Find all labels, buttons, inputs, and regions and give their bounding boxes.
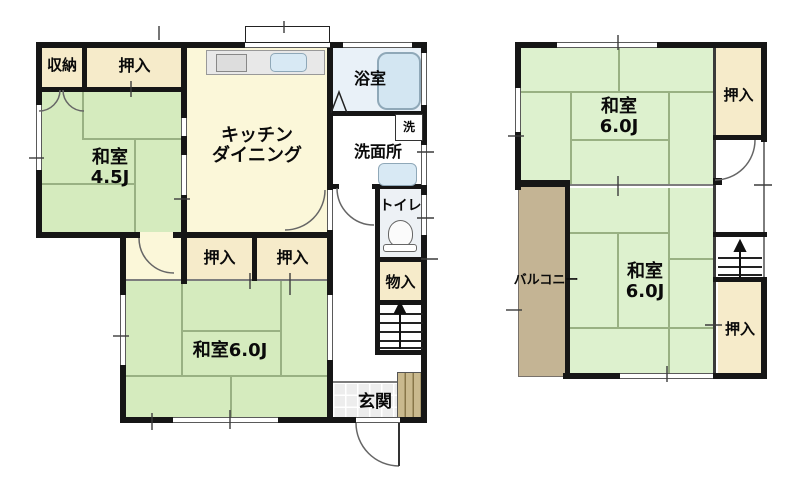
window bbox=[36, 105, 42, 170]
label-closet-top: 押入 bbox=[85, 57, 184, 75]
toilet-icon bbox=[388, 220, 413, 247]
tatami-line bbox=[570, 139, 668, 141]
bay-window-icon bbox=[245, 26, 330, 43]
stove-icon bbox=[216, 54, 247, 72]
room-name: 和室 bbox=[595, 262, 695, 282]
wall-2f-right-thin bbox=[763, 142, 765, 283]
fusuma-line bbox=[124, 279, 330, 281]
entrance-door-opening bbox=[356, 417, 400, 423]
wall bbox=[713, 373, 767, 379]
room-name: 和室 bbox=[569, 97, 669, 117]
wall bbox=[713, 178, 722, 185]
label-bathroom: 浴室 bbox=[333, 70, 407, 88]
label-laundry: 洗 bbox=[395, 121, 423, 134]
label-kitchen: キッチン ダイニング bbox=[186, 126, 328, 166]
label-storage: 収納 bbox=[39, 57, 85, 74]
wall bbox=[713, 277, 767, 282]
room-size: 4.5J bbox=[60, 168, 160, 188]
wall bbox=[375, 350, 427, 355]
stairs-1f bbox=[380, 331, 423, 333]
tatami-line bbox=[230, 375, 232, 420]
tatami-line bbox=[668, 258, 713, 260]
label-closet-2f-bottom: 押入 bbox=[718, 321, 762, 338]
window bbox=[343, 42, 412, 48]
label-washitsu-2f-top: 和室 6.0J bbox=[569, 97, 669, 137]
door-opening bbox=[327, 190, 333, 230]
toilet-base-icon bbox=[383, 244, 417, 252]
label-closet-mid-left: 押入 bbox=[184, 249, 255, 267]
window bbox=[620, 373, 713, 379]
label-closet-2f-top: 押入 bbox=[715, 87, 762, 104]
room-size: 6.0J bbox=[595, 282, 695, 302]
window bbox=[557, 42, 657, 48]
door-arc-icon-2f bbox=[715, 140, 755, 180]
label-storage-small: 物入 bbox=[378, 274, 423, 291]
wall bbox=[333, 184, 339, 189]
stairs-1f bbox=[380, 347, 423, 349]
washroom-door-arc-icon bbox=[337, 188, 374, 225]
wall bbox=[518, 180, 570, 187]
stairs-2f bbox=[718, 257, 762, 259]
label-washitsu-6-1f: 和室6.0J bbox=[130, 341, 330, 361]
stairs-2f bbox=[718, 266, 762, 268]
label-washitsu-2f-bottom: 和室 6.0J bbox=[595, 262, 695, 302]
label-balcony: バルコニー bbox=[496, 274, 596, 289]
room-name: キッチン bbox=[186, 126, 328, 146]
label-washitsu-4-5: 和室 4.5J bbox=[60, 148, 160, 188]
wall bbox=[563, 373, 620, 379]
kitchen-sink-icon bbox=[270, 53, 307, 72]
wall bbox=[375, 257, 423, 262]
tatami-line bbox=[82, 138, 184, 140]
tatami-line bbox=[82, 90, 84, 138]
washbasin-icon bbox=[378, 163, 417, 186]
stairs-up-arrowhead-icon bbox=[735, 241, 745, 251]
stairs-2f bbox=[718, 274, 762, 276]
stairs-1f bbox=[380, 340, 423, 342]
wall bbox=[375, 300, 423, 305]
window bbox=[421, 53, 427, 105]
window bbox=[173, 417, 278, 423]
tatami-line bbox=[618, 45, 620, 91]
stairs-1f bbox=[380, 313, 423, 315]
entrance-edge bbox=[333, 381, 397, 383]
tatami-line bbox=[570, 232, 668, 234]
wall bbox=[36, 87, 184, 92]
label-entrance: 玄関 bbox=[343, 393, 407, 412]
wall bbox=[713, 135, 767, 140]
room-name: ダイニング bbox=[186, 146, 328, 166]
stairs-1f bbox=[380, 322, 423, 324]
label-toilet: トイレ bbox=[378, 199, 423, 215]
floorplan-canvas: 収納 押入 和室 4.5J キッチン ダイニング 浴室 洗 洗面所 トイレ 物入… bbox=[0, 0, 800, 488]
window bbox=[120, 295, 126, 365]
wall bbox=[713, 232, 767, 237]
label-closet-mid-right: 押入 bbox=[255, 249, 330, 267]
hallway-1f bbox=[126, 232, 181, 284]
room-size: 6.0J bbox=[569, 117, 669, 137]
label-washroom: 洗面所 bbox=[333, 143, 423, 161]
tatami-line bbox=[570, 327, 713, 329]
tatami-line bbox=[181, 330, 281, 332]
window bbox=[515, 88, 521, 132]
tatami-line bbox=[521, 91, 715, 93]
entrance-door-arc-icon bbox=[356, 423, 399, 466]
room-name: 和室 bbox=[60, 148, 160, 168]
room-divider-2f bbox=[570, 184, 715, 186]
tatami-line bbox=[124, 375, 330, 377]
